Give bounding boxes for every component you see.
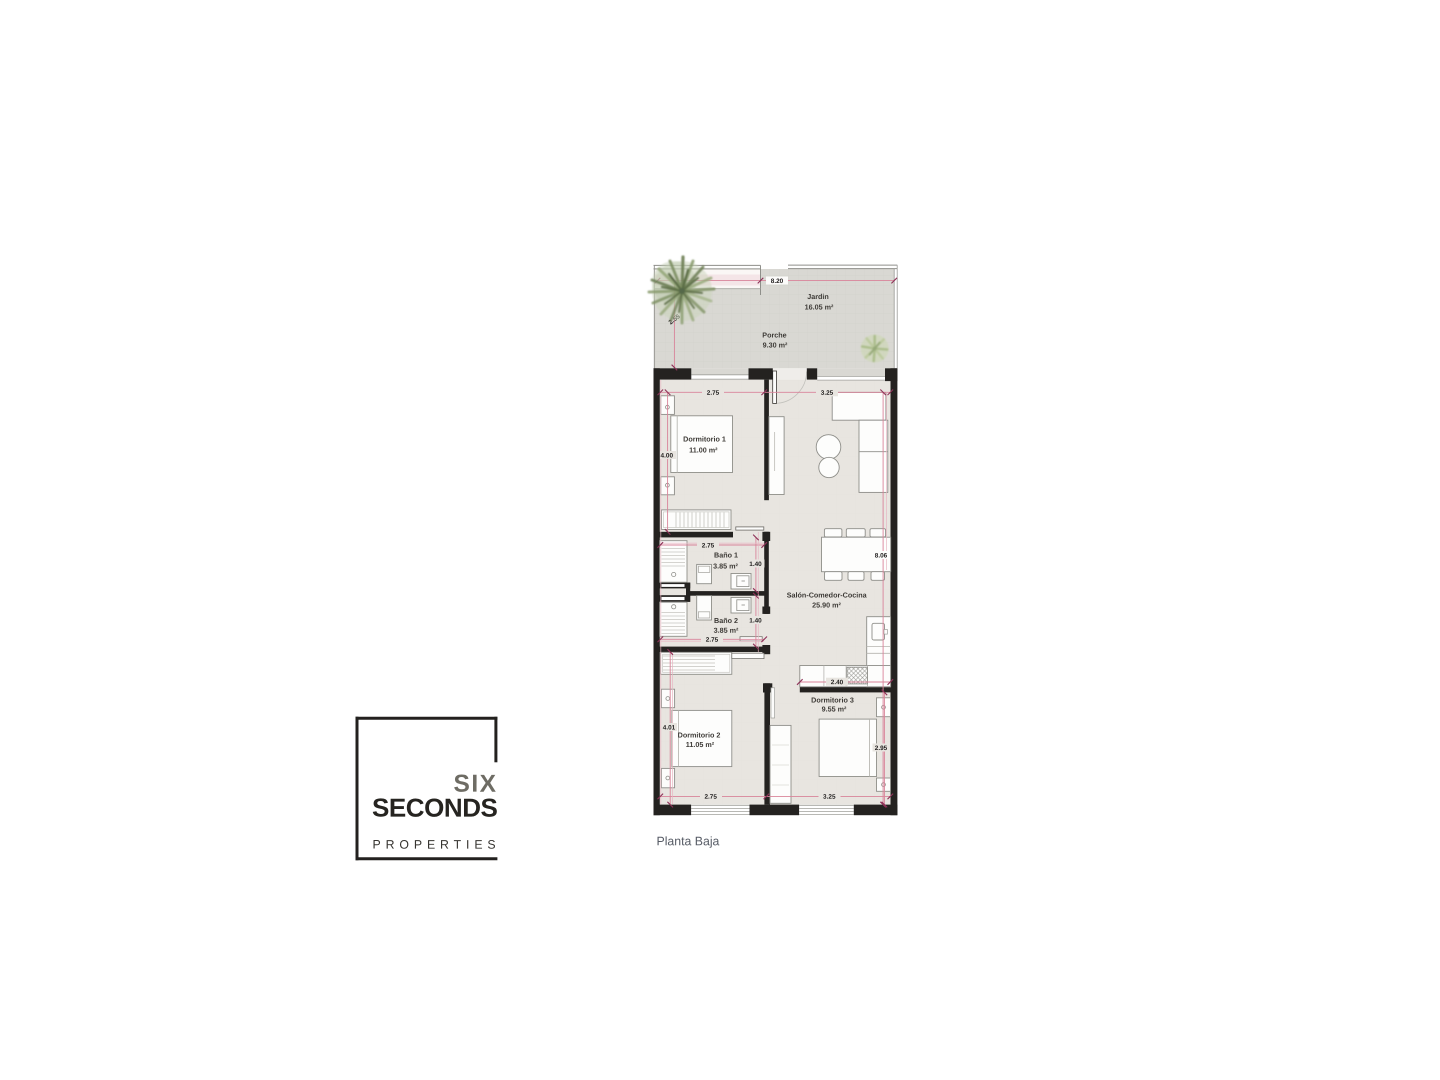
svg-text:2.75: 2.75 [707, 390, 720, 397]
svg-text:2.75: 2.75 [702, 542, 715, 549]
svg-text:2.75: 2.75 [706, 637, 719, 644]
svg-text:SECONDS: SECONDS [372, 793, 498, 823]
svg-text:Jardin: Jardin [807, 292, 829, 301]
svg-text:4.01: 4.01 [663, 724, 676, 731]
svg-text:16.05 m²: 16.05 m² [805, 302, 834, 311]
svg-text:2.95: 2.95 [875, 745, 888, 752]
svg-text:Dormitorio 2: Dormitorio 2 [678, 730, 721, 739]
svg-text:9.30 m²: 9.30 m² [763, 340, 788, 349]
svg-text:Porche: Porche [762, 330, 786, 339]
svg-text:1.40: 1.40 [749, 617, 762, 624]
svg-text:1.40: 1.40 [749, 561, 762, 568]
svg-text:3.85 m²: 3.85 m² [713, 561, 738, 570]
svg-text:Baño 1: Baño 1 [714, 550, 738, 559]
svg-text:2.40: 2.40 [831, 679, 844, 686]
svg-text:Baño 2: Baño 2 [714, 616, 738, 625]
svg-text:8.20: 8.20 [771, 278, 784, 285]
svg-text:PROPERTIES: PROPERTIES [372, 838, 500, 852]
svg-text:3.85 m²: 3.85 m² [714, 626, 739, 635]
svg-text:3.25: 3.25 [821, 390, 834, 397]
svg-text:11.05 m²: 11.05 m² [686, 740, 715, 749]
svg-text:4.00: 4.00 [661, 452, 674, 459]
svg-text:9.55 m²: 9.55 m² [822, 704, 847, 713]
svg-text:25.90 m²: 25.90 m² [812, 600, 841, 609]
svg-text:2.75: 2.75 [704, 794, 717, 801]
svg-text:Salón-Comedor-Cocina: Salón-Comedor-Cocina [787, 590, 868, 599]
svg-text:Dormitorio 3: Dormitorio 3 [811, 695, 854, 704]
svg-text:Planta Baja: Planta Baja [656, 834, 719, 848]
svg-text:11.00 m²: 11.00 m² [689, 445, 718, 454]
svg-text:Dormitorio 1: Dormitorio 1 [683, 434, 726, 443]
svg-text:8.06: 8.06 [875, 552, 888, 559]
svg-text:3.25: 3.25 [823, 794, 836, 801]
